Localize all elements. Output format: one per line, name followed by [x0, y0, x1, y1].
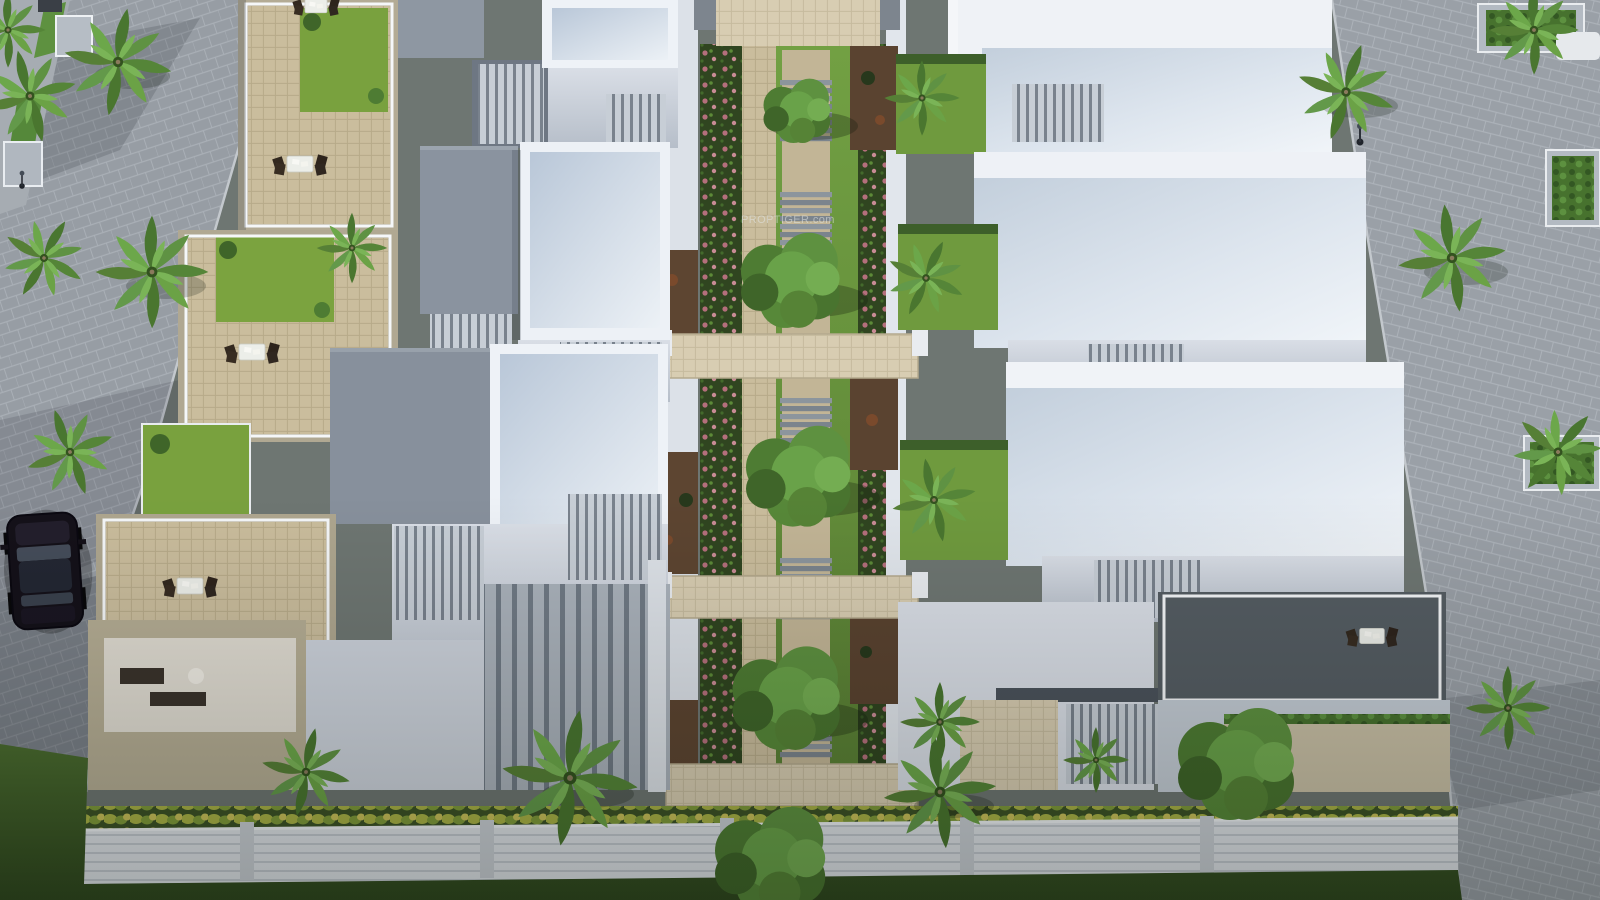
scene-svg	[0, 0, 1600, 900]
aerial-render: PROPTIGER.com	[0, 0, 1600, 900]
watermark: PROPTIGER.com	[741, 214, 835, 226]
light-falloff-overlay	[0, 0, 1600, 900]
